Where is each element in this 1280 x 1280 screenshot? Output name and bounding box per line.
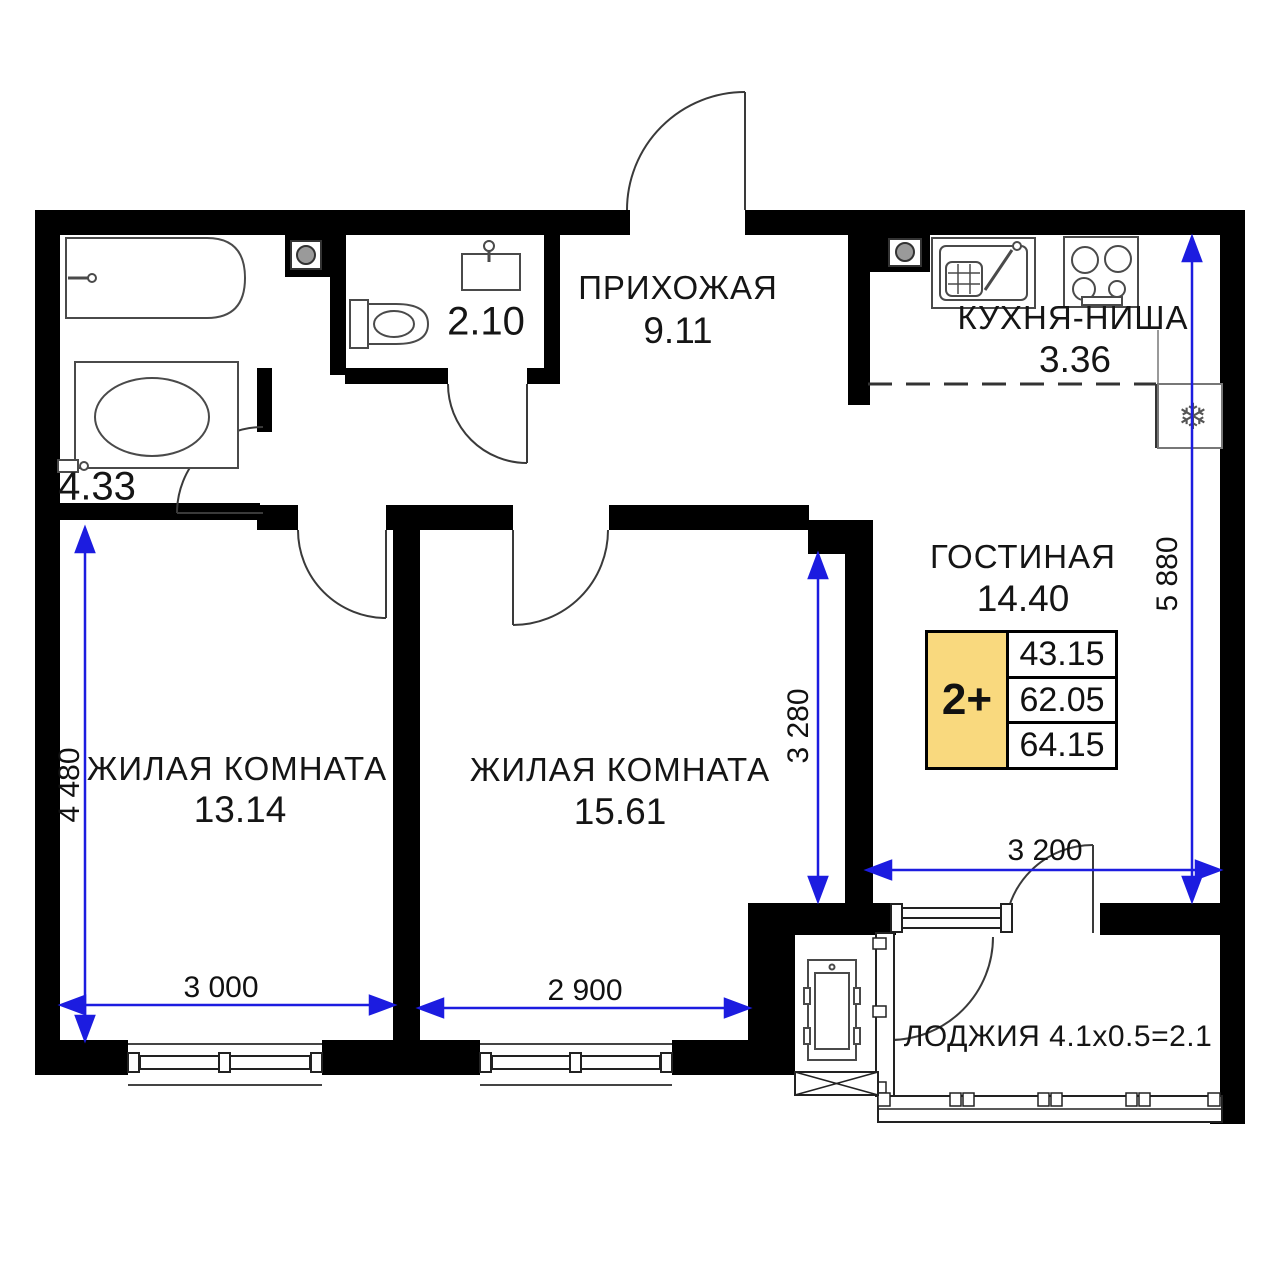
wall-segment: [745, 210, 1245, 235]
wall-segment: [257, 368, 272, 432]
bedroom-middle-door: [513, 530, 608, 625]
dim-label-3280: 3 280: [782, 688, 816, 763]
living-room-name-label: ГОСТИНАЯ: [930, 538, 1116, 576]
hallway-area-label: 9.11: [643, 310, 712, 352]
wall-segment: [808, 520, 848, 554]
dim-label-5880: 5 880: [1151, 536, 1185, 611]
wall-segment: [1220, 210, 1245, 937]
card-value-area: 62.05: [1009, 679, 1115, 725]
loggia-formula-label: 4.1x0.5=2.1: [1049, 1020, 1212, 1053]
vent-shaft-kitchen-icon: [889, 239, 921, 266]
wall-segment: [1100, 903, 1245, 935]
wall-segment: [748, 903, 795, 1075]
washing-machine-icon: [804, 960, 860, 1060]
vent-shaft-bathroom-icon: [291, 241, 321, 269]
bedroom-middle-name-label: ЖИЛАЯ КОМНАТА: [470, 751, 770, 789]
window-living-room: [891, 904, 1012, 932]
bedroom-left-door: [298, 530, 386, 618]
kitchen-sink-icon: [932, 238, 1035, 308]
dim-label-4480: 4 480: [53, 747, 87, 822]
wall-segment: [35, 210, 60, 1075]
wall-segment: [35, 210, 630, 235]
hatched-opening: [795, 1072, 878, 1095]
entrance-door: [627, 92, 745, 210]
window-bedroom-middle: [480, 1040, 672, 1087]
bathroom-sink-icon: [58, 362, 238, 472]
apartment-card-values: 43.15 62.05 64.15: [1006, 633, 1115, 767]
dim-label-3200: 3 200: [1007, 834, 1082, 868]
wc-door: [448, 384, 527, 463]
wall-segment: [544, 235, 560, 384]
stove-icon: [1064, 237, 1138, 307]
toilet-icon: [350, 300, 428, 348]
card-value-total-area: 64.15: [1009, 724, 1115, 767]
wall-segment: [257, 505, 298, 530]
wc-sink-icon: [462, 240, 520, 290]
window-bedroom-left: [128, 1040, 322, 1087]
wall-segment: [35, 1040, 130, 1075]
floor-plan: ❄: [0, 0, 1280, 1280]
kitchen-zone-boundary: [868, 384, 1156, 448]
wall-segment: [845, 520, 873, 905]
wall-segment: [322, 1040, 480, 1075]
dim-label-2900: 2 900: [547, 974, 622, 1008]
bedroom-left-name-label: ЖИЛАЯ КОМНАТА: [87, 750, 387, 788]
bathroom-area-label: 4.33: [58, 465, 136, 510]
wall-segment: [330, 235, 346, 375]
apartment-card: 2+ 43.15 62.05 64.15: [925, 630, 1118, 770]
bedroom-middle-area-label: 15.61: [574, 791, 667, 833]
dim-label-3000: 3 000: [183, 971, 258, 1005]
apartment-type-badge: 2+: [928, 633, 1006, 767]
wall-segment: [1220, 935, 1245, 1096]
kitchen-name-label: КУХНЯ-НИША: [957, 299, 1188, 337]
living-room-area-label: 14.40: [977, 578, 1070, 620]
hallway-name-label: ПРИХОЖАЯ: [578, 269, 778, 307]
wall-segment: [609, 505, 809, 530]
loggia-name-label: ЛОДЖИЯ: [904, 1020, 1041, 1053]
card-value-living-area: 43.15: [1009, 633, 1115, 679]
bedroom-left-area-label: 13.14: [194, 789, 287, 831]
wall-segment: [345, 368, 448, 384]
kitchen-area-label: 3.36: [1039, 339, 1111, 381]
wall-segment: [393, 505, 420, 1040]
loggia-label: ЛОДЖИЯ 4.1x0.5=2.1: [904, 1020, 1213, 1054]
windows: [128, 904, 1222, 1122]
wc-area-label: 2.10: [447, 300, 525, 345]
bathtub-icon: [66, 238, 245, 318]
